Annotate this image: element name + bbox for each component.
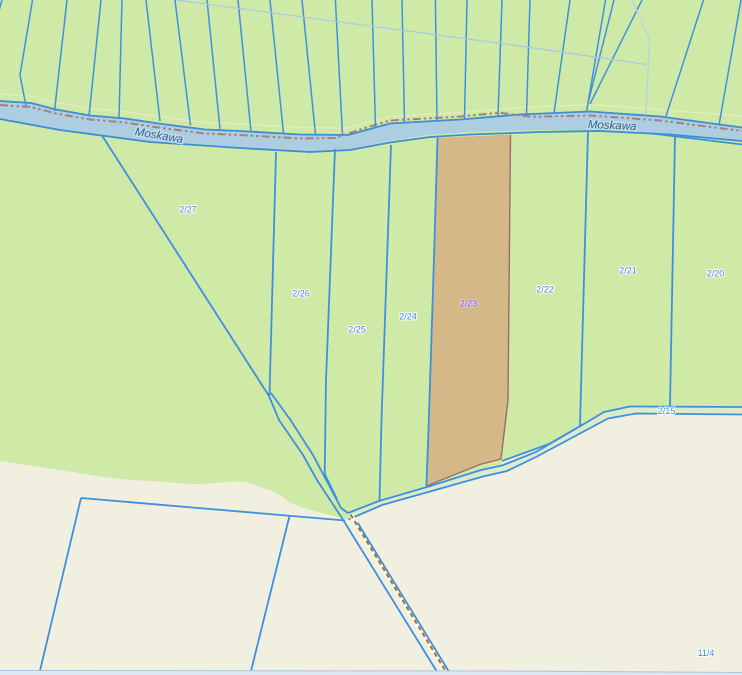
svg-text:2/24: 2/24 — [399, 312, 417, 322]
svg-text:2/21: 2/21 — [619, 266, 637, 276]
svg-text:11/4: 11/4 — [698, 648, 715, 658]
svg-text:2/27: 2/27 — [179, 205, 197, 215]
svg-text:2/15: 2/15 — [658, 406, 676, 416]
svg-text:2/22: 2/22 — [536, 285, 554, 295]
svg-text:Moskawa: Moskawa — [588, 119, 637, 133]
svg-text:2/25: 2/25 — [348, 325, 366, 335]
svg-text:2/23: 2/23 — [460, 299, 478, 309]
svg-text:2/20: 2/20 — [707, 269, 725, 279]
svg-text:2/26: 2/26 — [292, 289, 310, 299]
